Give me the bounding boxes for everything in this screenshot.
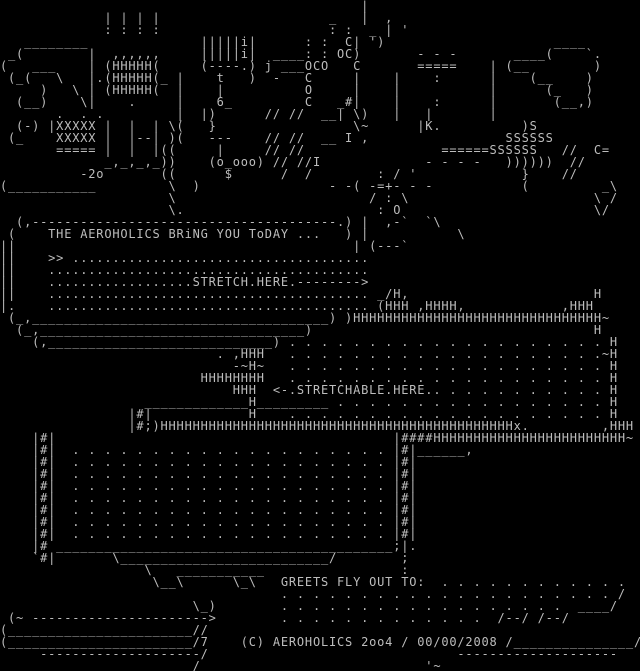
ascii-art-screen: | | | | | _ | , : : : : : : _ | ' ______… [0,0,640,671]
greets-art: \__\ \_\ GREETS FLY OUT TO: . . . . . . … [0,576,640,624]
footer-art: (_______________________// (____________… [0,624,640,671]
stretch-area-art: (,____________________________) . . . . … [0,336,640,432]
logo-art: | | | | | _ | , : : : : : : _ | ' ______… [0,0,640,216]
block-area-art: |#| |####HHHHHHHHHHHHHHHHHHHHHHHH~ |#| .… [0,432,640,576]
intro-box-art: (,--------------------------------------… [0,216,640,336]
